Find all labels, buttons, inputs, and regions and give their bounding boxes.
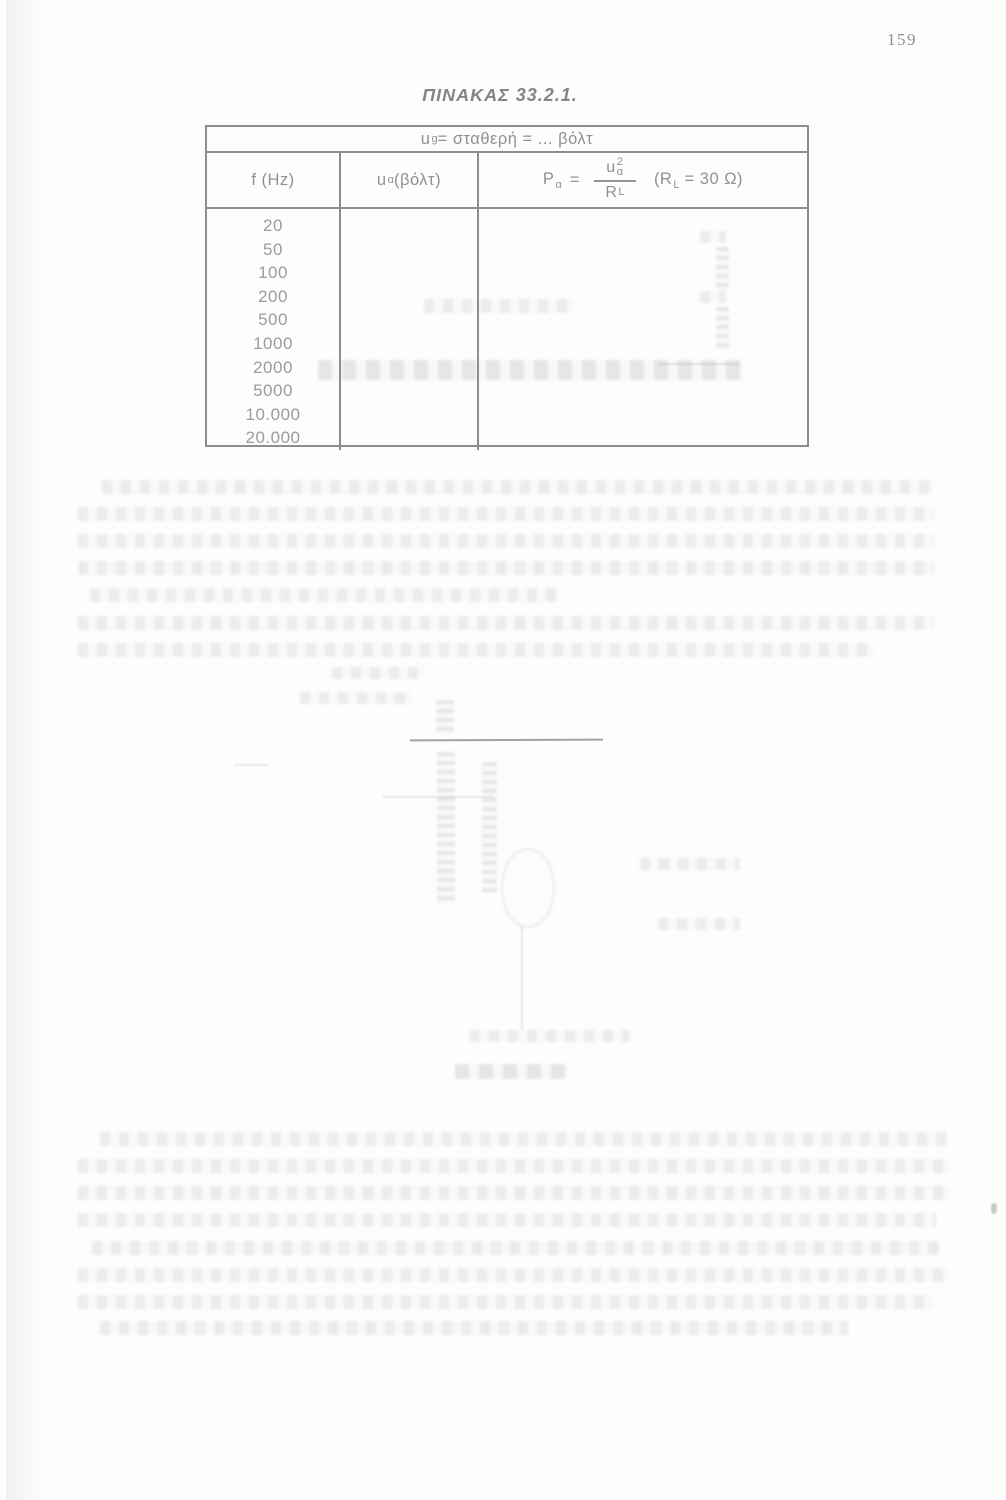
load-condition: (RL = 30 Ω) bbox=[654, 170, 743, 191]
frequency-value: 1000 bbox=[207, 332, 339, 356]
frequency-value: 5000 bbox=[207, 379, 339, 403]
frequency-values-column: 20 50 100 200 500 1000 2000 5000 10.000 … bbox=[207, 209, 341, 450]
power-values-column-empty bbox=[479, 209, 807, 450]
bleed-through-schematic-coil bbox=[482, 762, 497, 894]
bleed-through-wire bbox=[234, 764, 268, 766]
span-header-text: = σταθερή = ... βόλτ bbox=[438, 130, 594, 149]
bleed-through-paragraph-line bbox=[100, 1321, 848, 1335]
bleed-through-schematic-mark bbox=[640, 858, 740, 870]
span-header-variable: u bbox=[421, 130, 431, 149]
bleed-through-paragraph-line bbox=[78, 1159, 950, 1173]
bleed-through-paragraph-line bbox=[78, 1268, 948, 1282]
bleed-through-paragraph-line bbox=[100, 1132, 948, 1146]
bleed-through-paragraph-line bbox=[78, 507, 934, 521]
frequency-value: 100 bbox=[207, 261, 339, 285]
frequency-value: 20 bbox=[207, 214, 339, 238]
scan-speck bbox=[991, 1203, 997, 1214]
voltage-variable: u bbox=[377, 171, 387, 190]
fraction-denominator: RL bbox=[605, 184, 624, 201]
equals-sign: = bbox=[570, 171, 580, 190]
table-header-row: f (Hz) uα (βόλτ) Pα = u2α RL (RL = 30 Ω) bbox=[207, 153, 807, 209]
page-number: 159 bbox=[880, 30, 924, 50]
frequency-value: 2000 bbox=[207, 356, 339, 380]
bleed-through-schematic-mark bbox=[658, 918, 740, 930]
bleed-through-wire bbox=[521, 926, 523, 1030]
fraction-numerator: u2α bbox=[606, 157, 623, 177]
column-header-voltage: uα (βόλτ) bbox=[341, 153, 479, 207]
voltage-unit: (βόλτ) bbox=[394, 171, 441, 190]
bleed-through-wire bbox=[382, 796, 494, 798]
power-variable: Pα bbox=[543, 170, 562, 191]
fraction-bar bbox=[594, 180, 636, 182]
frequency-value: 20.000 bbox=[207, 426, 339, 450]
table-title: ΠΙΝΑΚΑΣ 33.2.1. bbox=[300, 85, 700, 106]
table-span-header: ug = σταθερή = ... βόλτ bbox=[207, 127, 807, 153]
bleed-through-transistor-circle bbox=[501, 848, 555, 928]
voltage-values-column-empty bbox=[341, 209, 479, 450]
bleed-through-schematic-mark bbox=[300, 692, 412, 704]
bleed-through-paragraph-line bbox=[102, 480, 934, 494]
column-header-frequency: f (Hz) bbox=[207, 153, 341, 207]
scanned-document-page: 159 ΠΙΝΑΚΑΣ 33.2.1. ug = σταθερή = ... β… bbox=[0, 0, 1006, 1500]
frequency-value: 10.000 bbox=[207, 403, 339, 427]
fraction: u2α RL bbox=[590, 157, 640, 201]
bleed-through-schematic-coil bbox=[437, 752, 455, 904]
bleed-through-caption bbox=[455, 1064, 567, 1079]
frequency-value: 50 bbox=[207, 238, 339, 262]
bleed-through-schematic-mark bbox=[470, 1030, 630, 1042]
bleed-through-paragraph-line bbox=[78, 1186, 950, 1200]
frequency-value: 500 bbox=[207, 308, 339, 332]
table-body-row: 20 50 100 200 500 1000 2000 5000 10.000 … bbox=[207, 209, 807, 450]
frequency-value: 200 bbox=[207, 285, 339, 309]
bleed-through-paragraph-line bbox=[78, 1295, 933, 1309]
bleed-through-paragraph-line bbox=[78, 643, 874, 657]
bleed-through-paragraph-line bbox=[78, 561, 934, 575]
bleed-through-paragraph-line bbox=[90, 588, 558, 602]
bleed-through-paragraph-line bbox=[78, 534, 934, 548]
bleed-through-paragraph-line bbox=[92, 1241, 940, 1255]
bleed-through-schematic-coil bbox=[436, 700, 454, 734]
column-header-power-formula: Pα = u2α RL (RL = 30 Ω) bbox=[479, 153, 807, 207]
data-table: ug = σταθερή = ... βόλτ f (Hz) uα (βόλτ)… bbox=[205, 125, 809, 447]
divider-line bbox=[410, 739, 603, 742]
bleed-through-paragraph-line bbox=[78, 1213, 936, 1227]
bleed-through-paragraph-line bbox=[78, 616, 934, 630]
bleed-through-paragraph-line bbox=[332, 667, 424, 679]
page-edge-shadow bbox=[6, 0, 42, 1500]
